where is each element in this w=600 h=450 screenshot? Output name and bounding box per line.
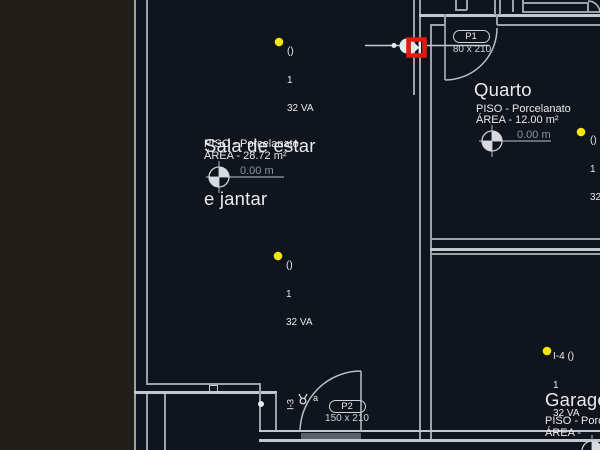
- room-title-quarto: Quarto: [474, 81, 532, 99]
- level-marker-garagem[interactable]: [582, 435, 600, 450]
- room-area-sala: ÁREA - 28.72 m²: [204, 151, 287, 163]
- level-value-sala: 0.00 m: [240, 165, 274, 177]
- light-tag: (): [287, 47, 314, 57]
- light-qty: 1: [590, 165, 600, 175]
- light-point-sala-top[interactable]: [275, 38, 284, 47]
- light-tag: (): [590, 136, 600, 146]
- light-label-area4: I-4 () 1 32 VA: [553, 333, 580, 438]
- light-tag: (): [286, 261, 313, 271]
- level-value-quarto: 0.00 m: [517, 129, 551, 141]
- light-point-quarto[interactable]: [577, 128, 586, 137]
- light-point-sala-mid[interactable]: [274, 252, 283, 261]
- switch-point[interactable]: [258, 401, 264, 407]
- circuit-label: I-3: [286, 395, 297, 415]
- room-title-line: e jantar: [204, 190, 316, 208]
- light-qty: 1: [553, 381, 580, 391]
- leader-node: [392, 43, 397, 48]
- switch-letter: a: [313, 393, 318, 403]
- door-size-p1: 80 x 210: [451, 44, 493, 55]
- door-tag-p1[interactable]: P1: [453, 30, 490, 43]
- light-qty: 1: [286, 290, 313, 300]
- light-power: 32 VA: [287, 104, 314, 114]
- door-tag-p2[interactable]: P2: [329, 400, 366, 413]
- cad-canvas[interactable]: Sala de estar e jantar PISO - Porcelanat…: [0, 0, 600, 450]
- light-label-sala-mid: () 1 32 VA: [286, 242, 313, 347]
- light-label-sala-top: () 1 32 VA: [287, 28, 314, 133]
- selected-device-bar: [411, 41, 413, 55]
- light-qty: 1: [287, 76, 314, 86]
- light-point-area4[interactable]: [543, 347, 552, 356]
- wall-sconce-symbol[interactable]: [400, 39, 407, 54]
- light-power: 32 VA: [286, 318, 313, 328]
- light-power: 32 VA: [553, 409, 580, 419]
- room-area-quarto: ÁREA - 12.00 m²: [476, 115, 559, 127]
- light-tag: I-4 (): [553, 352, 580, 362]
- selected-device-arrow: [414, 42, 420, 53]
- room-floor-sala: PISO - Porcelanato: [204, 139, 299, 151]
- door-swing-arc: [588, 1, 600, 13]
- light-power: 32 VA: [590, 193, 600, 203]
- door-size-p2: 150 x 210: [323, 413, 371, 424]
- selected-device-bar: [419, 41, 421, 55]
- light-label-quarto: () 1 32 VA: [590, 117, 600, 222]
- switch-symbol[interactable]: [299, 394, 307, 404]
